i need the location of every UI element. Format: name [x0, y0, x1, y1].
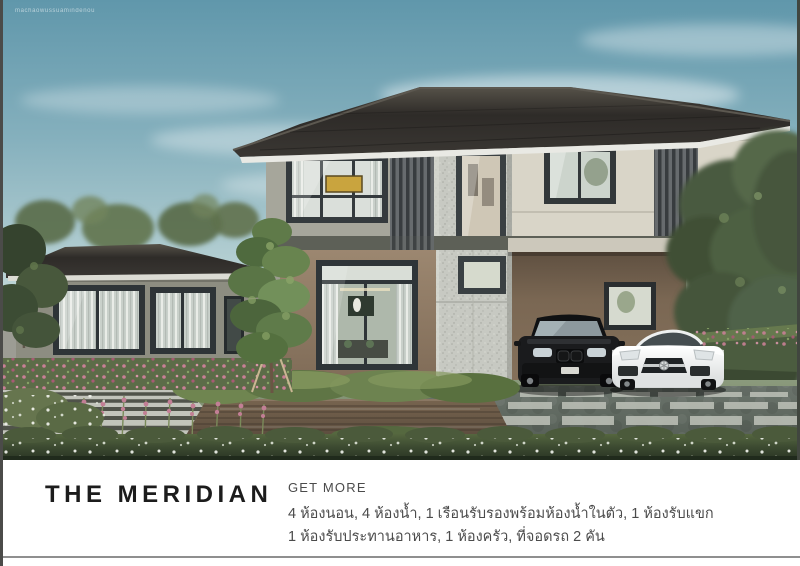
interior-art: [348, 296, 374, 316]
stone-column: [434, 139, 512, 399]
sportscar-headlight-left: [620, 350, 640, 360]
suv-headlight-left: [533, 348, 552, 357]
column-tall-window: [456, 150, 506, 242]
living-room-window: [316, 260, 418, 370]
footer-rule: [0, 556, 800, 558]
carport-window: [604, 282, 656, 330]
page-left-border: [0, 0, 3, 566]
spec-line-2: 1 ห้องรับประทานอาหาร, 1 ห้องครัว, ที่จอด…: [288, 525, 605, 548]
upper-right-window: [544, 146, 616, 204]
spec-line-1: 4 ห้องนอน, 4 ห้องน้ำ, 1 เรือนรับรองพร้อม…: [288, 502, 714, 525]
left-wing-window-2: [150, 287, 216, 354]
photo-watermark: machaowussuamindenou: [15, 8, 95, 14]
house-rendering-photo: [0, 0, 800, 460]
column-square-window: [458, 256, 506, 294]
brochure-page: machaowussuamindenou THE MERIDIAN GET MO…: [0, 0, 800, 566]
left-wing-window-1: [53, 285, 145, 355]
pink-flower-bed: [0, 358, 292, 390]
interior-artwork: [326, 176, 362, 192]
suv-headlight-right: [587, 348, 606, 357]
slat-panel-left: [390, 142, 434, 250]
caption-band: THE MERIDIAN GET MORE 4 ห้องนอน, 4 ห้องน…: [0, 460, 800, 566]
tagline: GET MORE: [288, 480, 367, 495]
project-title: THE MERIDIAN: [45, 481, 272, 509]
suv-grille: [556, 349, 584, 363]
upper-left-window: [286, 155, 388, 223]
sportscar-headlight-right: [694, 350, 714, 360]
sportscar-grille: [641, 358, 687, 373]
